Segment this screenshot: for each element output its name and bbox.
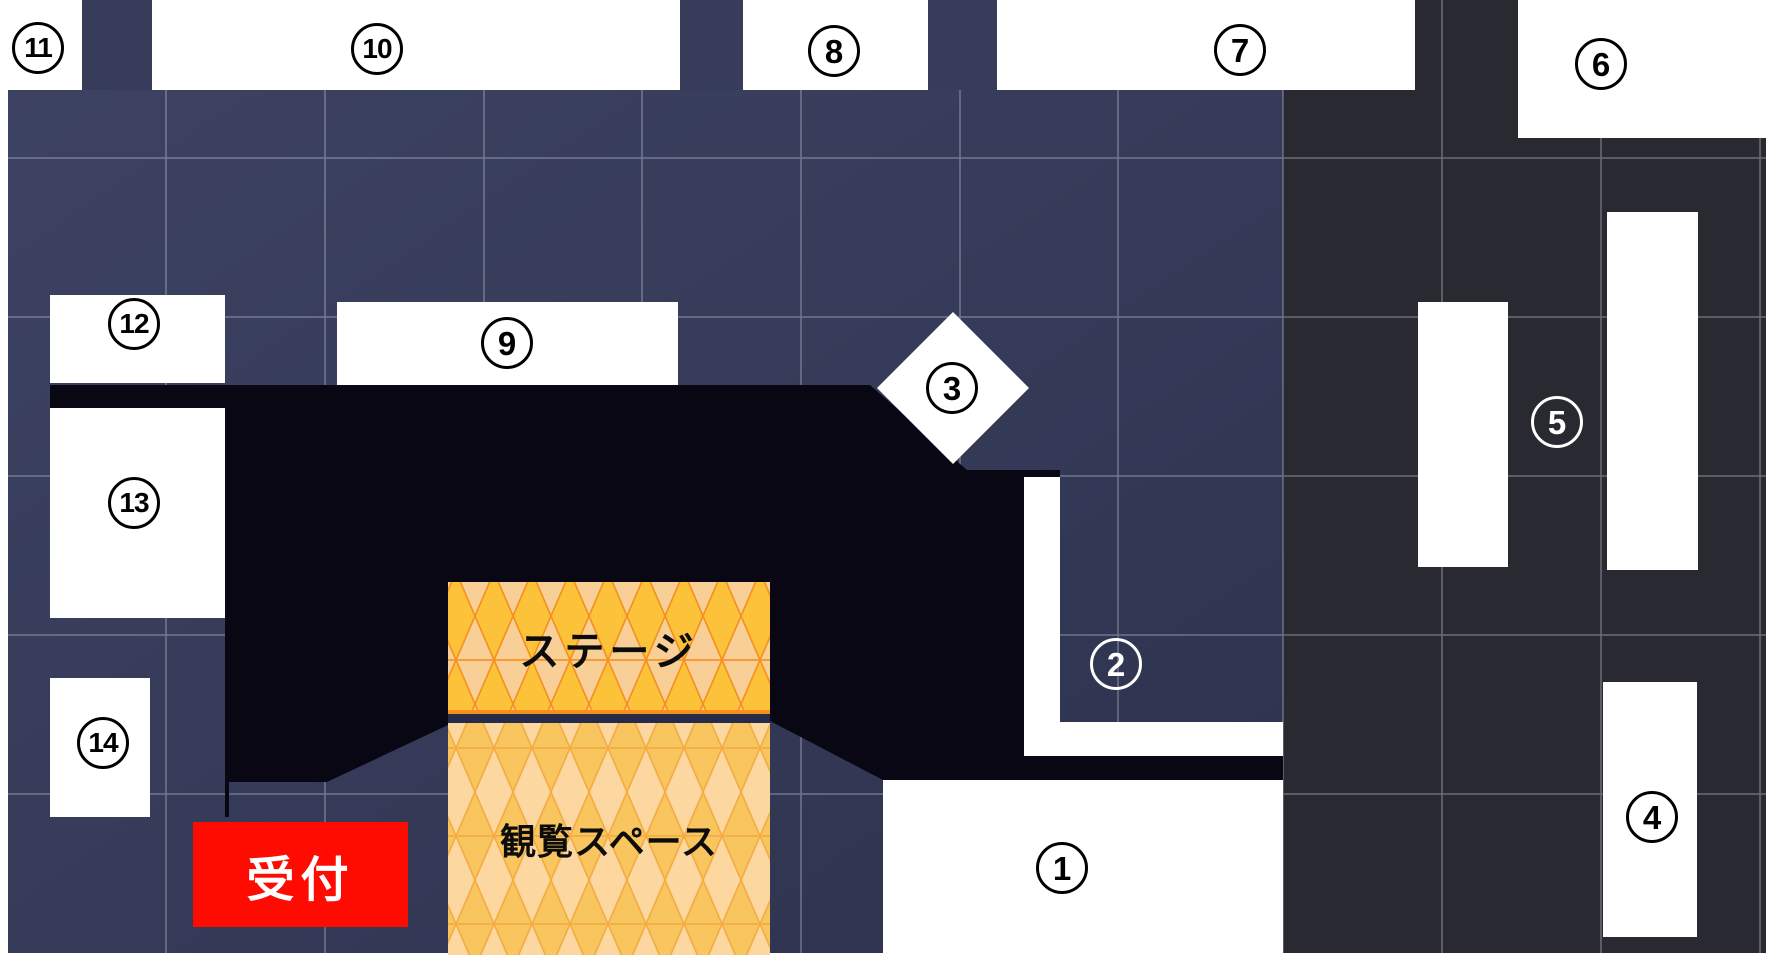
booth-7-badge: 7 [1214, 24, 1266, 76]
booth-5-badge: 5 [1531, 396, 1583, 448]
booth-11-number: 11 [24, 34, 52, 62]
reception-box: 受付 [193, 822, 408, 927]
booth-13-number: 13 [119, 489, 148, 517]
booth-10-number: 10 [362, 35, 391, 63]
booth-9-badge: 9 [481, 317, 533, 369]
booth-1-badge: 1 [1036, 842, 1088, 894]
stage-label: ステージ [448, 582, 770, 713]
booth-6-badge: 6 [1575, 38, 1627, 90]
booth-12-badge: 12 [108, 298, 160, 350]
booth-14-badge: 14 [77, 717, 129, 769]
booth-5-number: 5 [1548, 406, 1566, 439]
booth-1-number: 1 [1053, 852, 1071, 885]
booth-8-badge: 8 [808, 25, 860, 77]
booth-2-badge: 2 [1090, 638, 1142, 690]
booth-7-number: 7 [1231, 34, 1249, 67]
booth-3-badge: 3 [926, 362, 978, 414]
booth-11-badge: 11 [12, 22, 64, 74]
reception-label: 受付 [246, 840, 354, 910]
booth-9-number: 9 [498, 327, 516, 360]
labels-overlay: 1 2 3 4 5 6 7 8 9 10 11 12 13 14 ステージ 観覧… [0, 0, 1766, 963]
booth-8-number: 8 [825, 35, 843, 68]
booth-6-number: 6 [1592, 48, 1610, 81]
booth-14-number: 14 [88, 729, 117, 757]
booth-4-badge: 4 [1626, 791, 1678, 843]
audience-area-label: 観覧スペース [448, 723, 770, 955]
booth-12-number: 12 [119, 310, 148, 338]
venue-floor-plan: 1 2 3 4 5 6 7 8 9 10 11 12 13 14 ステージ 観覧… [0, 0, 1766, 963]
booth-13-badge: 13 [108, 477, 160, 529]
booth-2-number: 2 [1107, 648, 1125, 681]
booth-3-number: 3 [943, 372, 961, 405]
booth-10-badge: 10 [351, 23, 403, 75]
booth-4-number: 4 [1643, 801, 1661, 834]
